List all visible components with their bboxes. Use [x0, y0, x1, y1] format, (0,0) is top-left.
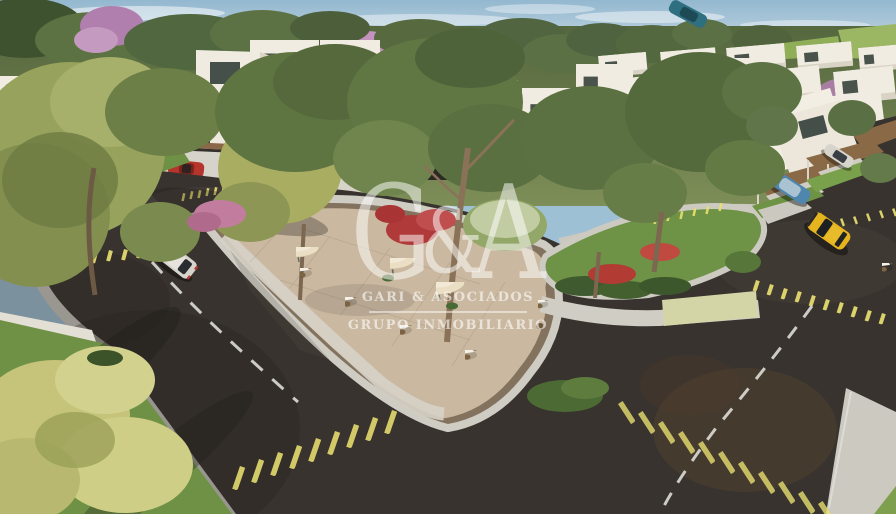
architectural-render: G&A GARI & ASOCIADOS GRUPO INMOBILIARIO: [0, 0, 896, 514]
lone-chair: [536, 323, 544, 329]
potted-plant: [446, 303, 458, 310]
red-bush: [640, 243, 680, 261]
white-flower-tree: [470, 200, 540, 238]
potted-plant: [382, 275, 394, 282]
round-shrub: [725, 251, 761, 273]
